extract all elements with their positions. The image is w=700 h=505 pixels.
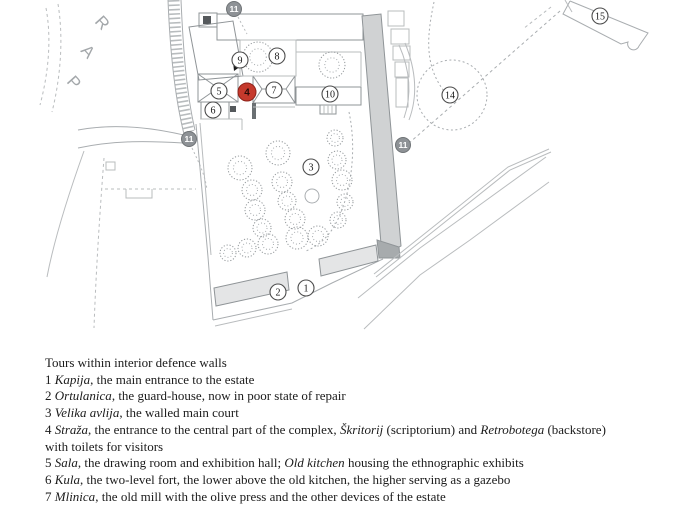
tree-symbol-inner xyxy=(247,185,258,196)
svg-text:10: 10 xyxy=(325,90,335,101)
tree-symbol xyxy=(308,226,328,246)
tree-symbol-inner xyxy=(331,134,340,143)
svg-text:11: 11 xyxy=(399,140,408,150)
tree-symbol-inner xyxy=(282,196,292,206)
legend: Tours within interior defence walls 1 Ka… xyxy=(45,355,677,505)
tree-symbol-inner xyxy=(334,216,343,225)
tree-symbol-inner xyxy=(250,205,261,216)
map-marker-10: 10 xyxy=(322,86,338,102)
park-boundary-dashes xyxy=(40,4,61,112)
svg-text:4: 4 xyxy=(244,88,250,99)
map-marker-2: 2 xyxy=(270,284,286,300)
south-wall-strips xyxy=(214,245,378,306)
east-terraces xyxy=(388,11,415,120)
chapel-building xyxy=(523,0,648,50)
tree-symbol xyxy=(328,151,346,169)
legend-item: 2 Ortulanica, the guard-house, now in po… xyxy=(45,388,677,405)
svg-text:11: 11 xyxy=(230,4,239,14)
tree-symbol-inner xyxy=(291,232,303,244)
tree-symbol xyxy=(327,130,343,146)
legend-item: 6 Kula, the two-level fort, the lower ab… xyxy=(45,472,677,489)
tree-symbol xyxy=(266,141,290,165)
tree-symbol xyxy=(278,192,296,210)
map-marker-14: 14 xyxy=(442,87,458,103)
tree-symbol xyxy=(242,180,262,200)
map-marker-11: 11 xyxy=(396,138,411,153)
tree-symbol xyxy=(228,156,252,180)
site-plan: PAR xyxy=(0,0,700,360)
map-marker-3: 3 xyxy=(303,159,319,175)
svg-text:6: 6 xyxy=(211,106,216,117)
map-marker-11: 11 xyxy=(182,132,197,147)
tree-symbol-inner xyxy=(271,146,284,159)
map-marker-11: 11 xyxy=(227,2,242,17)
tree-symbol-inner xyxy=(224,249,233,258)
tree-symbol-inner xyxy=(337,175,348,186)
tree-symbol-inner xyxy=(250,49,267,66)
tree-symbol xyxy=(245,200,265,220)
fountain-circle xyxy=(408,2,560,144)
tree-symbol-inner xyxy=(277,177,288,188)
tree-symbol xyxy=(285,209,305,229)
legend-item: 4 Straža, the entrance to the central pa… xyxy=(45,422,677,439)
legend-item: 7 Mlinica, the old mill with the olive p… xyxy=(45,489,677,505)
park-letter: R xyxy=(91,12,113,34)
tree-symbol xyxy=(258,234,278,254)
map-marker-5: 5 xyxy=(211,83,227,99)
tree-symbol xyxy=(319,52,345,78)
defence-wall xyxy=(362,14,401,258)
tree-symbol xyxy=(330,212,346,228)
tree-symbol-inner xyxy=(257,223,267,233)
svg-text:9: 9 xyxy=(238,56,243,67)
west-wing xyxy=(189,21,243,80)
tree-symbol-inner xyxy=(332,155,342,165)
map-marker-7: 7 xyxy=(266,82,282,98)
svg-text:14: 14 xyxy=(445,91,455,102)
roads-left xyxy=(47,127,188,277)
tree-symbol xyxy=(220,245,236,261)
tree-symbol xyxy=(332,170,352,190)
tree-symbol-inner xyxy=(325,58,339,72)
tree-symbol-inner xyxy=(242,243,252,253)
svg-text:7: 7 xyxy=(272,86,277,97)
legend-item: 1 Kapija, the main entrance to the estat… xyxy=(45,372,677,389)
legend-item: 5 Sala, the drawing room and exhibition … xyxy=(45,455,677,472)
park-letter: A xyxy=(77,41,99,63)
legend-title: Tours within interior defence walls xyxy=(45,355,677,372)
site-plan-drawing: PAR xyxy=(0,0,700,360)
legend-lines: 1 Kapija, the main entrance to the estat… xyxy=(45,372,677,505)
map-marker-6: 6 xyxy=(205,102,221,118)
map-marker-8: 8 xyxy=(269,48,285,64)
map-marker-15: 15 xyxy=(592,8,608,24)
svg-text:11: 11 xyxy=(185,134,194,144)
tree-symbol-inner xyxy=(233,161,246,174)
svg-text:5: 5 xyxy=(217,87,222,98)
tree-symbol-inner xyxy=(263,239,274,250)
svg-text:8: 8 xyxy=(275,52,280,63)
svg-text:1: 1 xyxy=(304,284,309,295)
svg-text:2: 2 xyxy=(276,288,281,299)
legend-item: 3 Velika avlija, the walled main court xyxy=(45,405,677,422)
map-marker-1: 1 xyxy=(298,280,314,296)
tree-symbol-inner xyxy=(313,231,324,242)
tree-symbol xyxy=(238,239,256,257)
boundary-lines-left xyxy=(94,158,196,328)
map-marker-4: 4 xyxy=(238,83,256,101)
tree-symbol xyxy=(286,227,308,249)
park-letter: P xyxy=(63,72,85,93)
svg-text:15: 15 xyxy=(595,12,605,23)
legend-item: with toilets for visitors xyxy=(45,439,677,456)
tree-symbol xyxy=(272,172,292,192)
map-marker-9: 9 xyxy=(232,52,248,68)
svg-text:3: 3 xyxy=(309,163,314,174)
park-label: PAR xyxy=(63,12,113,93)
tree-symbol-inner xyxy=(290,214,301,225)
tree-symbol xyxy=(253,219,271,237)
well-circle xyxy=(305,189,319,203)
